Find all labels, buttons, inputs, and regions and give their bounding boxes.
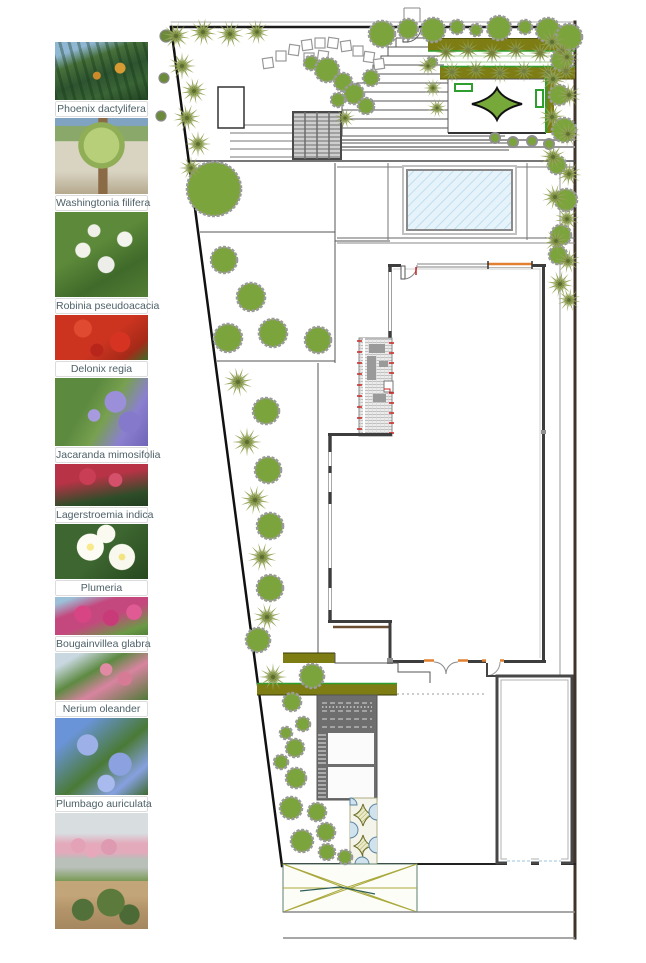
stepping-stone [288,44,299,55]
tree-symbol [280,797,302,819]
tree-symbol [211,247,237,273]
double-door [434,662,458,674]
tree-symbol [487,16,511,40]
stepping-stone [276,51,286,61]
pergola [293,112,341,159]
shrub-dot-symbol [490,133,500,143]
bench [536,90,543,107]
tree-symbol [259,319,287,347]
tree-symbol [296,717,310,731]
tree-symbol [274,755,288,769]
tree-symbol [518,20,532,34]
bench [455,84,472,91]
palm-symbol [168,52,196,80]
palm-symbol [425,96,449,120]
stepping-stone [301,39,312,50]
rear-door [486,662,500,676]
tree-symbol [338,850,352,864]
tree-symbol [257,513,283,539]
small-shrub-symbol [156,111,166,121]
palm-symbol [171,102,203,134]
tree-symbol [470,24,482,36]
tree-symbol [421,18,445,42]
lower-hedges [257,653,430,695]
deck-structure [317,695,377,800]
house [328,261,546,694]
tree-symbol [255,457,281,483]
tree-symbol [253,398,279,424]
stepping-stone [353,46,363,56]
tree-symbol [358,98,374,114]
tree-symbol [450,20,464,34]
tree-symbol [246,628,270,652]
palm-symbol [183,12,222,51]
stepping-stone [262,57,273,68]
planter-box [218,87,244,128]
tree-symbol [300,664,324,688]
swimming-pool [403,166,516,234]
tree-symbol [317,823,335,841]
tree-symbol [237,283,265,311]
palm-symbol [238,483,272,517]
shrub-dot-symbol [544,139,554,149]
tree-symbol [308,803,326,821]
entry-door [401,265,417,279]
stepping-stone [315,38,325,48]
tree-symbol [319,844,335,860]
palm-symbol [219,363,257,401]
stepping-stone [327,37,338,48]
courtyard [448,72,554,133]
stepping-stone [340,40,351,51]
tree-symbol [214,324,242,352]
palm-symbol [241,536,283,578]
interior-staircase [357,338,394,436]
small-shrub-symbol [159,73,169,83]
mosaic-path [350,798,377,864]
tree-symbol [257,575,283,601]
palm-symbol [212,16,248,52]
shrub-dot-symbol [508,137,518,147]
garage [497,676,572,866]
tree-symbol [556,24,582,50]
tree-symbol [331,93,345,107]
palm-symbol [227,422,267,462]
shade-sail [283,864,417,912]
tree-symbol [283,693,301,711]
tree-symbol [363,70,379,86]
stepping-stone [373,58,384,69]
tree-symbol [369,21,395,47]
tree-symbol [286,768,306,788]
tree-symbol [286,739,304,757]
site-plan [0,0,646,963]
shrub-dot-symbol [527,136,537,146]
garden-plan-page: Phoenix dactyliferaWashingtonia filifera… [0,0,646,963]
tree-symbol [280,727,292,739]
tree-symbol [398,19,418,39]
palm-symbol [241,16,273,48]
tree-symbol [305,327,331,353]
street-lines [283,912,575,938]
tree-symbol [291,830,313,852]
